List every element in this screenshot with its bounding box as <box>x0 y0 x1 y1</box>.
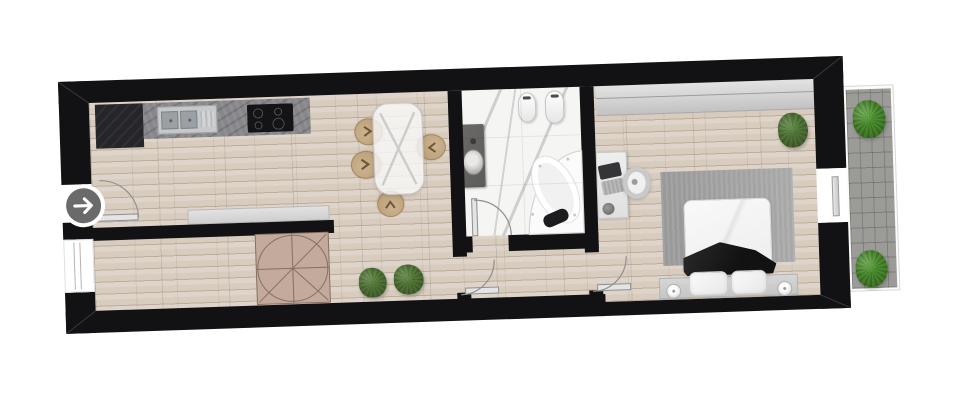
apartment-plan <box>58 54 911 334</box>
kitchen-sink-unit <box>157 105 218 135</box>
wall-left-lower <box>65 292 96 334</box>
wall-right-upper <box>813 56 847 169</box>
bidet <box>518 92 537 123</box>
wall-left-upper <box>58 81 91 185</box>
sink-drainboard <box>200 111 215 127</box>
wall-right-lower <box>818 222 851 309</box>
entrance-marker <box>66 188 102 224</box>
balcony <box>842 84 901 292</box>
bathroom-door-leaf <box>471 198 478 236</box>
window-glass-line <box>79 242 82 289</box>
cooktop <box>247 103 294 133</box>
window-frame-line <box>596 91 814 99</box>
laptop-screen <box>598 162 622 180</box>
wall-hall-door-stub-right <box>589 290 603 302</box>
wall-bathroom-bottom <box>508 232 598 251</box>
floor-plan-canvas <box>0 0 960 415</box>
kitchen-tall-cabinet <box>95 103 144 149</box>
hall-door-leaf-left <box>465 286 499 294</box>
sink-bowl-right <box>180 110 198 129</box>
balcony-sliding-door <box>832 176 840 216</box>
wall-bathroom-bottom-stub <box>459 236 473 252</box>
window-glass-line <box>73 243 76 290</box>
dining-table <box>372 102 425 196</box>
hall-window <box>63 239 95 293</box>
arrow-right-icon <box>66 188 102 224</box>
hall-door-leaf-right <box>597 283 631 291</box>
pillow-right <box>731 270 768 295</box>
sink-bowl-left <box>161 111 179 130</box>
pillow-left <box>689 271 729 296</box>
toilet <box>545 90 565 124</box>
entry-door-leaf <box>96 213 138 221</box>
